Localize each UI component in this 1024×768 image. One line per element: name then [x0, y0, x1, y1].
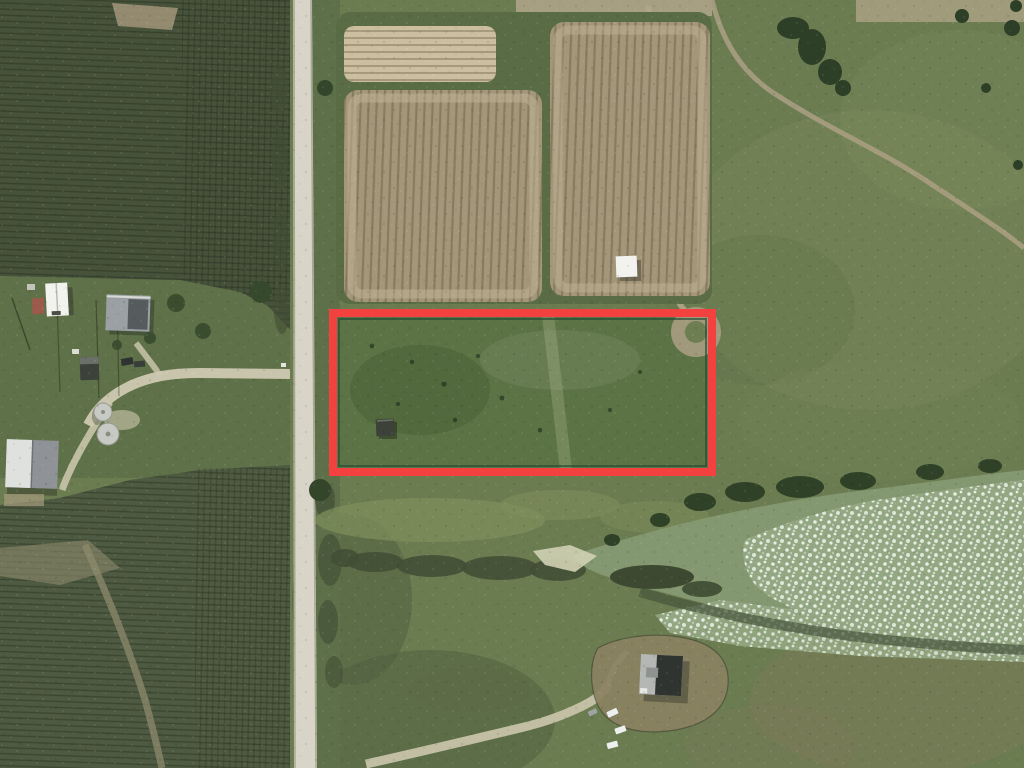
satellite-image [0, 0, 1024, 768]
image-grain [0, 0, 1024, 768]
